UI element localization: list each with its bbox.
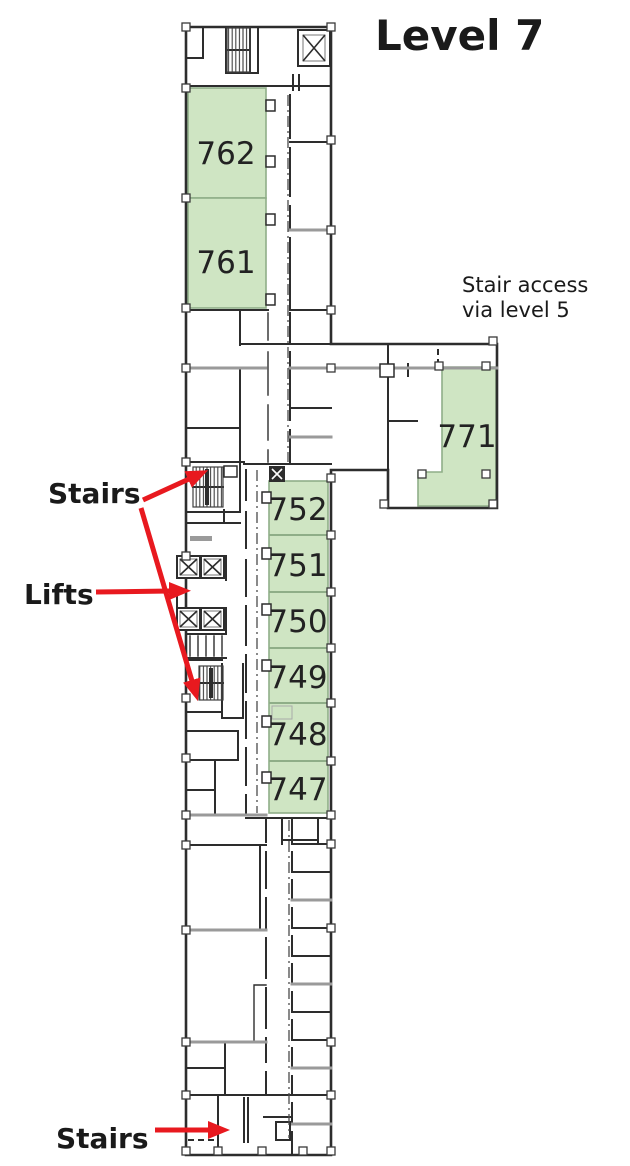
room-label-761: 761 [196,245,255,281]
riser-x-icon [269,466,285,482]
room-label-762: 762 [196,136,255,172]
room-label-750: 750 [268,604,327,640]
lift-shaft-icon-bank-2 [177,608,224,630]
stair-flight-bottom-block [224,466,237,477]
room-label-749: 749 [268,660,327,696]
floor-plan: Level 7 Stair access via level 5 Stairs … [0,0,630,1166]
stair-hatch-icon-upper [193,467,223,507]
floor-plan-page: Level 7 Stair access via level 5 Stairs … [0,0,630,1166]
stairs-top-label: Stairs [48,477,141,510]
room-label-771: 771 [437,419,496,455]
room-label-752: 752 [268,492,327,528]
stairs-long-arrow [141,508,192,681]
lifts-arrow [96,591,170,592]
lifts-label: Lifts [24,578,94,611]
room-label-751: 751 [268,548,327,584]
lift-shaft-icon-top-block [298,30,330,66]
room-label-747: 747 [268,772,327,808]
room-label-748: 748 [268,717,327,753]
stairs-bottom-label: Stairs [56,1122,149,1155]
page-title: Level 7 [375,11,544,60]
stair-hatch-icon-lower [199,666,223,700]
stair-access-note-line1: Stair access [462,273,588,297]
stair-hatch-icon-top-block [227,28,250,72]
stair-access-note-line2: via level 5 [462,298,570,322]
stairs-top-arrow [143,479,189,500]
